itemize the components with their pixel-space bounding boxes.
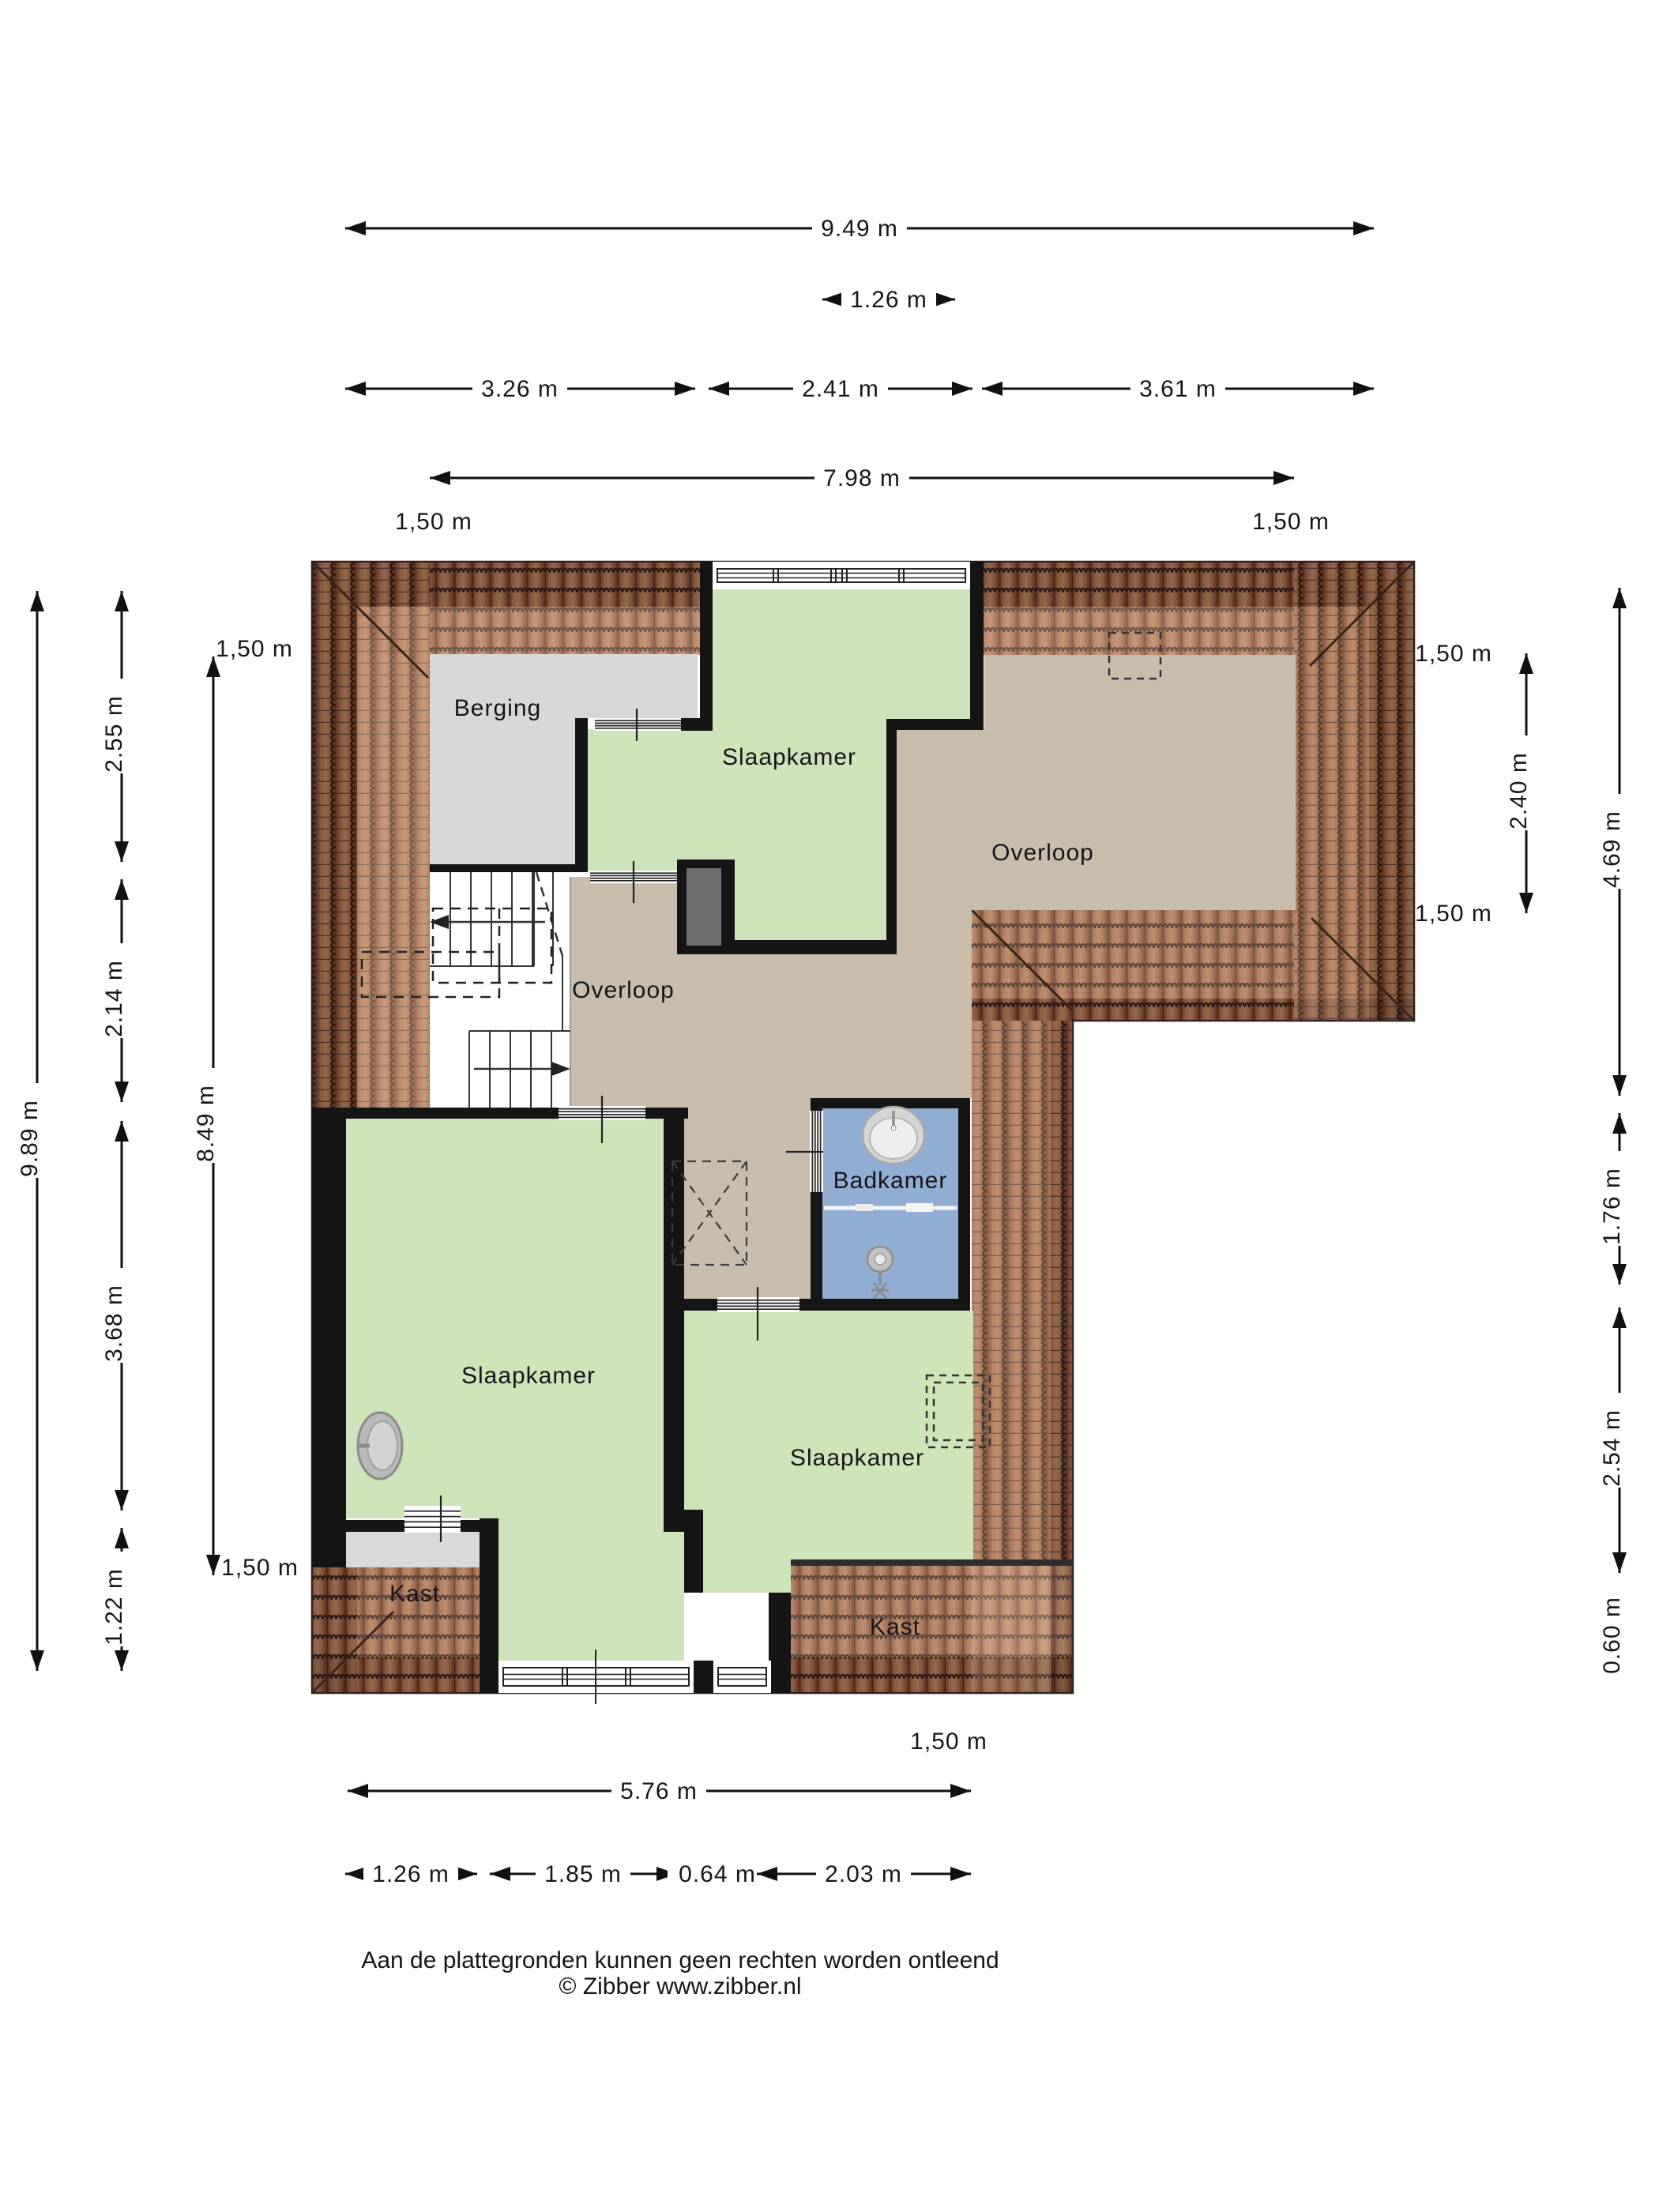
svg-text:7.98 m: 7.98 m (823, 465, 901, 491)
svg-text:1,50 m: 1,50 m (1415, 901, 1492, 927)
svg-text:2.03 m: 2.03 m (825, 1861, 902, 1887)
svg-text:1,50 m: 1,50 m (1252, 509, 1330, 535)
svg-text:Slaapkamer: Slaapkamer (790, 1445, 924, 1471)
svg-text:3.26 m: 3.26 m (481, 376, 559, 402)
svg-text:1,50 m: 1,50 m (1415, 641, 1492, 667)
svg-text:2.55 m: 2.55 m (101, 695, 127, 773)
svg-text:Kast: Kast (870, 1614, 920, 1640)
svg-text:3.61 m: 3.61 m (1139, 376, 1217, 402)
svg-text:1.26 m: 1.26 m (850, 287, 927, 313)
svg-text:2.54 m: 2.54 m (1599, 1409, 1625, 1487)
svg-text:1,50 m: 1,50 m (910, 1729, 987, 1755)
svg-text:Overloop: Overloop (991, 840, 1094, 866)
svg-text:© Zibber www.zibber.nl: © Zibber www.zibber.nl (559, 1973, 801, 1999)
svg-text:9.49 m: 9.49 m (821, 216, 898, 242)
svg-text:1.22 m: 1.22 m (101, 1568, 127, 1646)
svg-text:Overloop: Overloop (572, 977, 675, 1003)
svg-text:Aan de plattegronden kunnen ge: Aan de plattegronden kunnen geen rechten… (361, 1947, 999, 1973)
svg-text:3.68 m: 3.68 m (101, 1285, 127, 1362)
svg-text:Badkamer: Badkamer (833, 1168, 948, 1194)
svg-text:2.14 m: 2.14 m (101, 960, 127, 1037)
svg-text:Berging: Berging (454, 695, 541, 721)
svg-text:1.85 m: 1.85 m (544, 1861, 622, 1887)
svg-text:0.64 m: 0.64 m (679, 1861, 756, 1887)
svg-text:0.60 m: 0.60 m (1599, 1597, 1625, 1674)
svg-text:9.89 m: 9.89 m (17, 1100, 43, 1177)
svg-text:Slaapkamer: Slaapkamer (461, 1363, 596, 1389)
svg-text:2.41 m: 2.41 m (802, 376, 879, 402)
svg-text:1,50 m: 1,50 m (395, 509, 472, 535)
svg-text:8.49 m: 8.49 m (193, 1085, 219, 1162)
svg-text:Kast: Kast (389, 1581, 440, 1607)
svg-text:1.76 m: 1.76 m (1599, 1168, 1625, 1245)
svg-text:4.69 m: 4.69 m (1599, 811, 1625, 888)
svg-text:2.40 m: 2.40 m (1506, 752, 1532, 829)
svg-text:1.26 m: 1.26 m (372, 1861, 450, 1887)
svg-text:5.76 m: 5.76 m (620, 1778, 698, 1804)
svg-text:Slaapkamer: Slaapkamer (722, 744, 856, 770)
svg-text:1,50 m: 1,50 m (221, 1555, 299, 1581)
svg-text:1,50 m: 1,50 m (216, 636, 293, 662)
